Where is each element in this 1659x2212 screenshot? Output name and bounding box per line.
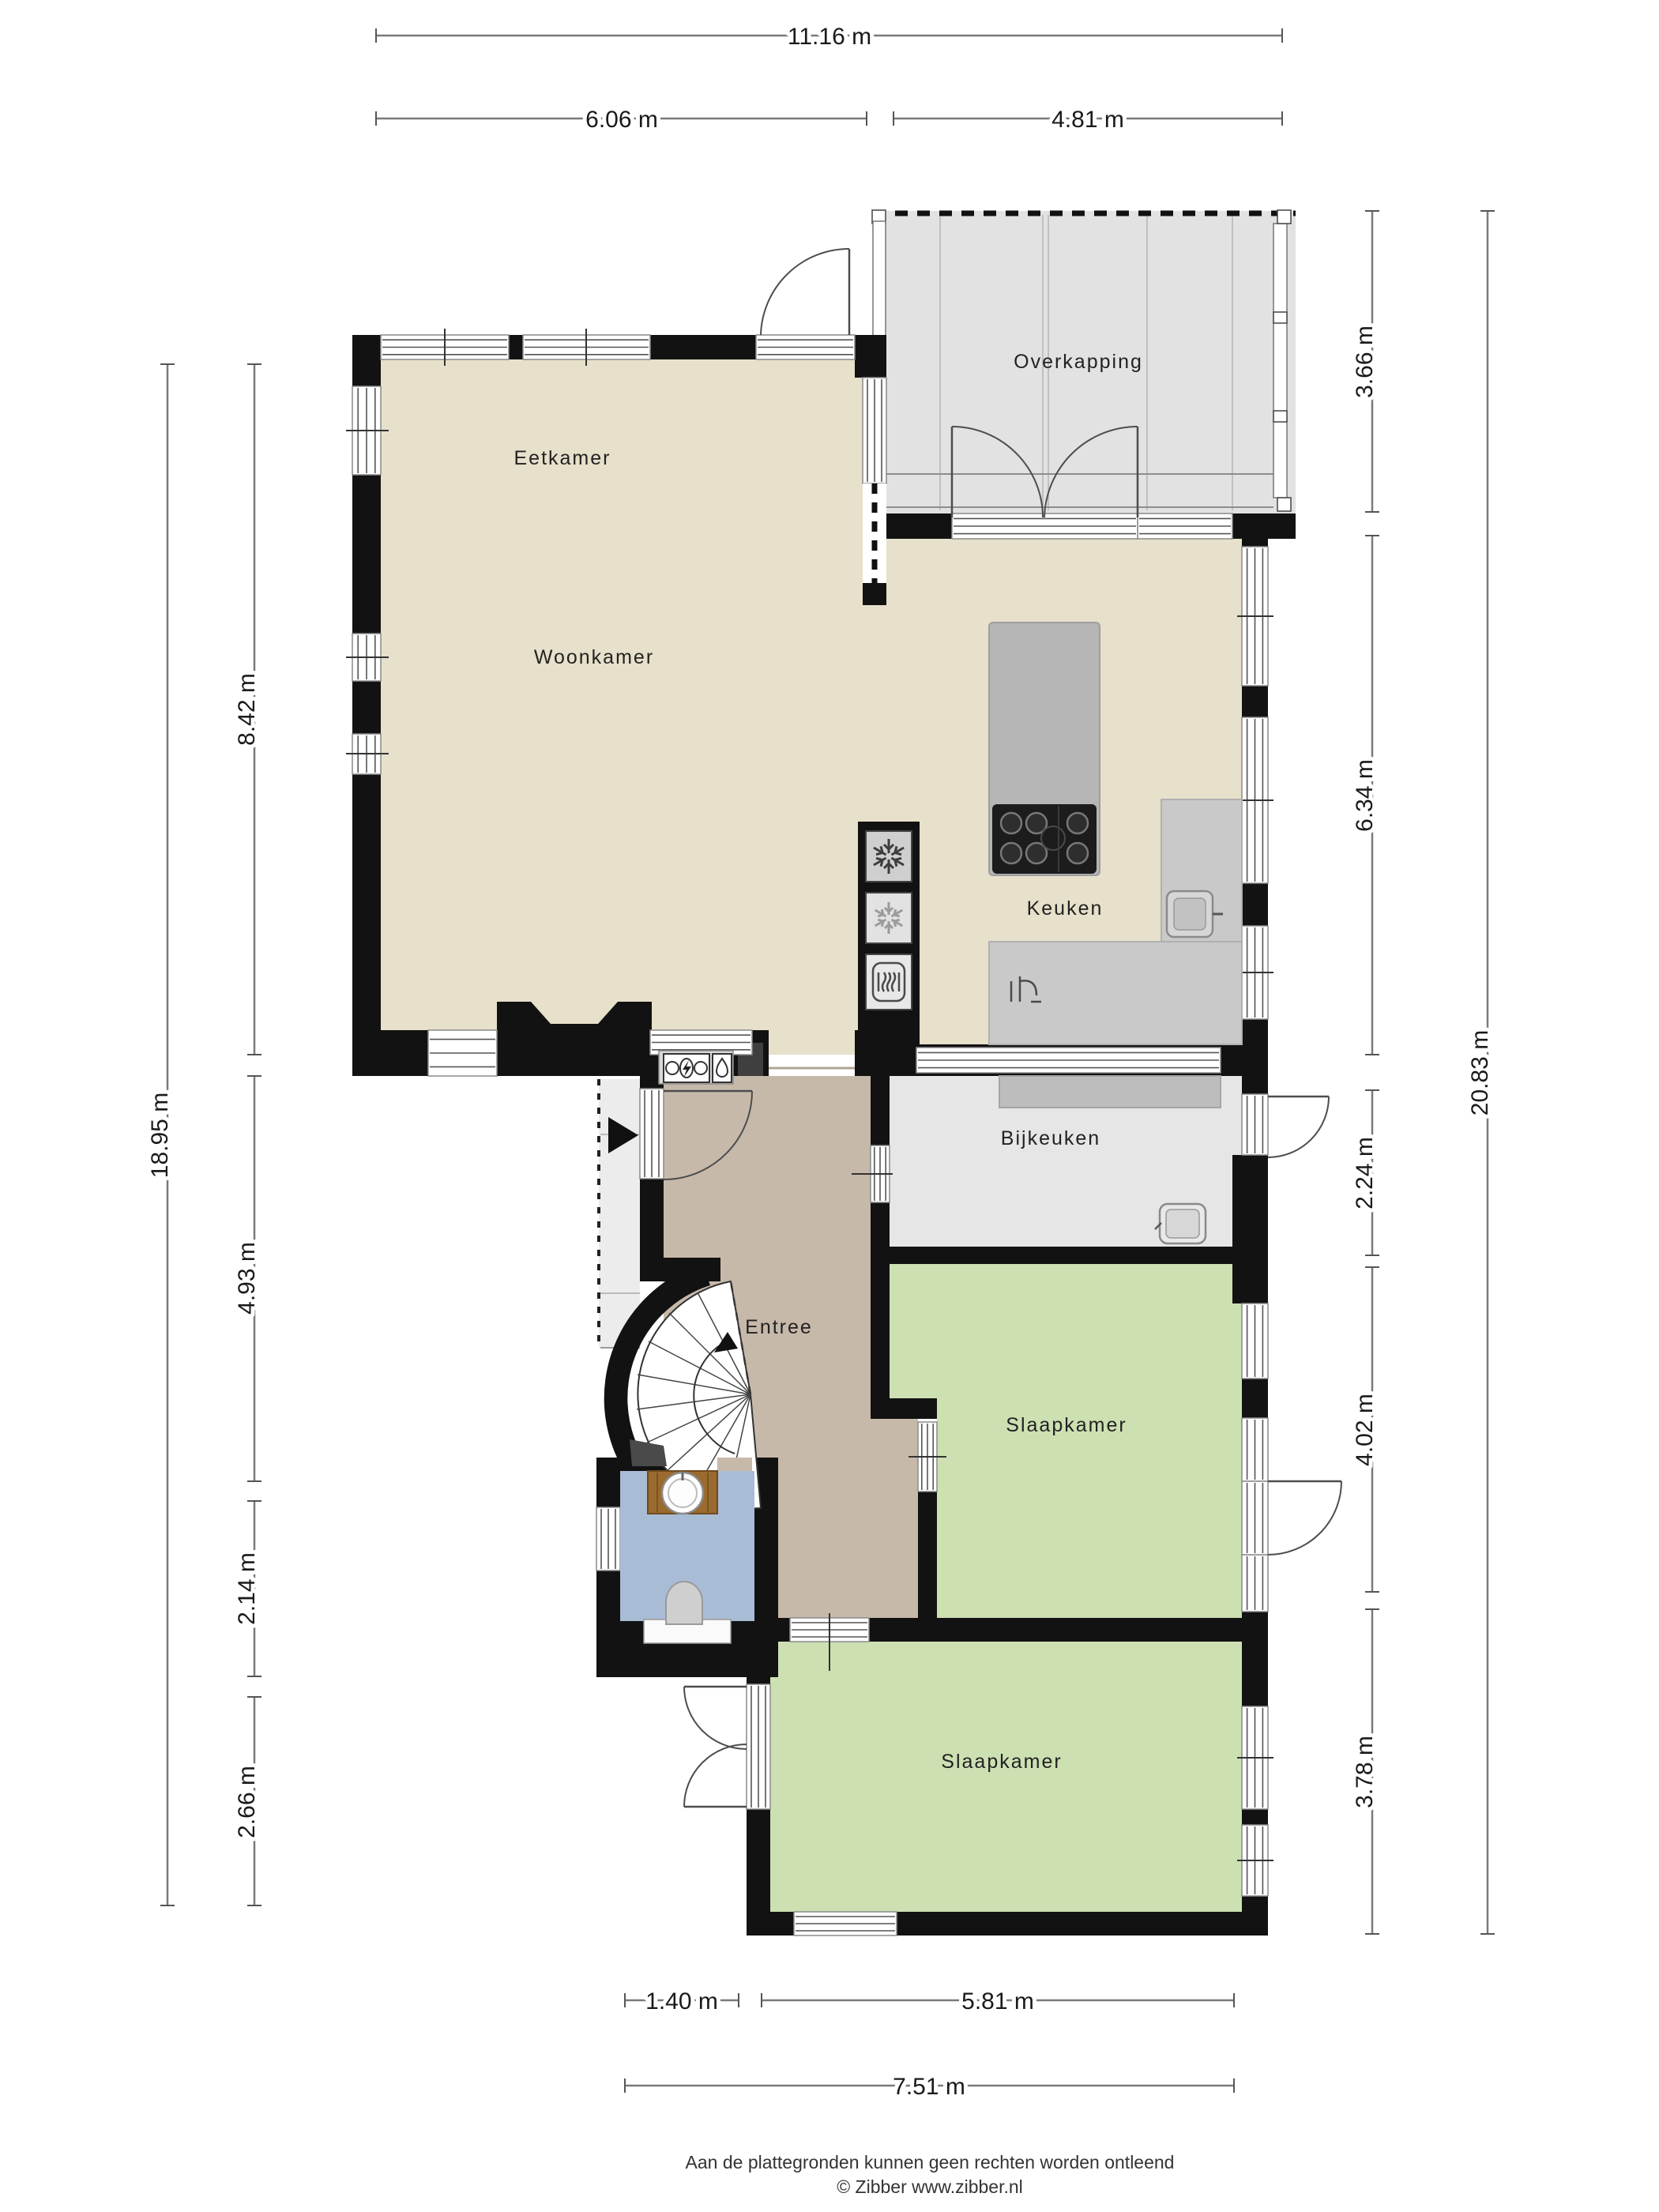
dim-left-seg-2: 2.14 m xyxy=(234,1552,260,1625)
dim-bottom-seg-1: 5.81 m xyxy=(961,1988,1034,2014)
fridge xyxy=(866,893,912,943)
overkapping-label: Overkapping xyxy=(1014,351,1143,373)
room-slaapkamer-1 xyxy=(890,1264,1242,1618)
appliances xyxy=(866,831,912,1010)
eetkamer-label: Eetkamer xyxy=(514,447,611,469)
dim-top-right: 4.81 m xyxy=(1051,107,1124,133)
footer-copyright: © Zibber www.zibber.nl xyxy=(837,2176,1023,2197)
dim-left-total: 18.95 m xyxy=(147,1093,173,1178)
overkapping-right-posts xyxy=(1273,224,1287,498)
freezer xyxy=(866,831,912,882)
dim-top-total: 11.16 m xyxy=(788,24,871,50)
slaapkamer1-label: Slaapkamer xyxy=(1006,1414,1127,1436)
room-eetkamer-woonkamer xyxy=(378,359,863,1055)
floors xyxy=(378,359,1242,1912)
dim-right-seg-0: 3.66 m xyxy=(1352,325,1378,398)
dim-right-total: 20.83 m xyxy=(1467,1030,1493,1115)
dim-bottom-total: 7.51 m xyxy=(893,2074,965,2100)
room-slaapkamer-2 xyxy=(770,1642,1242,1912)
footer: Aan de plattegronden kunnen geen rechten… xyxy=(686,2152,1175,2197)
toilet-icon xyxy=(666,1582,702,1624)
dim-left-seg-0: 8.42 m xyxy=(234,673,260,746)
counter-bottom xyxy=(989,942,1242,1044)
meter-boxes xyxy=(659,1051,733,1084)
room-overkapping: Overkapping xyxy=(872,210,1296,513)
floorplan-canvas: 11.16 m 6.06 m 4.81 m 18.95 m 8.42 m 4.9… xyxy=(0,0,1659,2212)
footer-disclaimer: Aan de plattegronden kunnen geen rechten… xyxy=(686,2152,1175,2172)
utility-counter xyxy=(999,1076,1221,1108)
keuken-label: Keuken xyxy=(1027,897,1104,920)
porch-strip xyxy=(599,1079,640,1348)
overkapping-left-post xyxy=(873,221,886,338)
slaapkamer2-label: Slaapkamer xyxy=(941,1751,1062,1773)
dim-left-seg-3: 2.66 m xyxy=(234,1766,260,1838)
dim-right-seg-3: 4.02 m xyxy=(1352,1394,1378,1466)
dim-top-left: 6.06 m xyxy=(585,107,658,133)
cased-opening xyxy=(863,483,886,583)
dim-right-seg-2: 2.24 m xyxy=(1352,1137,1378,1209)
toilet-doorway xyxy=(717,1458,752,1471)
dim-bottom-seg-0: 1.40 m xyxy=(645,1988,718,2014)
entrance-porch xyxy=(599,1079,640,1348)
bijkeuken-label: Bijkeuken xyxy=(1001,1127,1100,1149)
toilet-room xyxy=(620,1458,754,1643)
dim-right-seg-4: 3.78 m xyxy=(1352,1736,1378,1808)
dim-left-seg-1: 4.93 m xyxy=(234,1242,260,1315)
entree-label: Entree xyxy=(745,1316,813,1338)
dim-right-seg-1: 6.34 m xyxy=(1352,759,1378,832)
woonkamer-label: Woonkamer xyxy=(534,646,654,668)
